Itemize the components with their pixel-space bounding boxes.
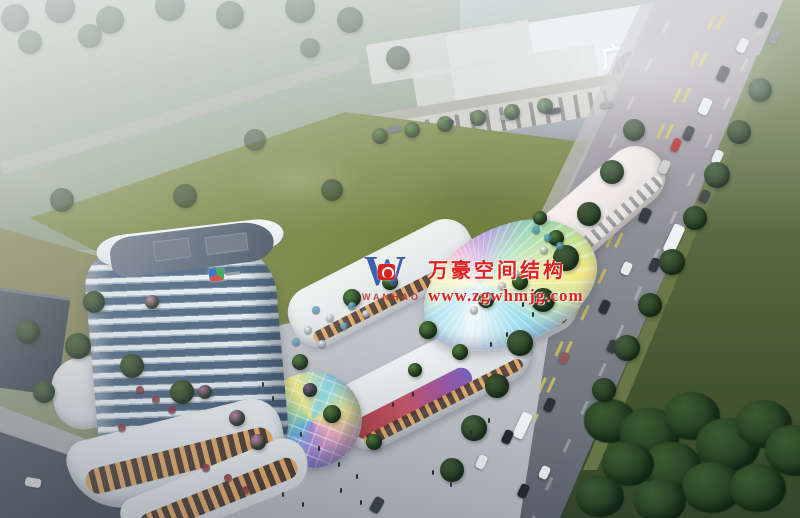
tree xyxy=(323,405,341,423)
tree xyxy=(437,116,453,132)
tree xyxy=(577,202,601,226)
tree xyxy=(614,335,640,361)
car xyxy=(388,125,403,133)
pedestrian xyxy=(302,502,304,507)
tree xyxy=(170,380,194,404)
tree xyxy=(408,363,422,377)
tree xyxy=(683,206,707,230)
car xyxy=(767,29,780,45)
tree xyxy=(452,344,468,360)
umbrella-icon xyxy=(318,340,326,348)
pedestrian xyxy=(432,470,434,475)
umbrella-icon xyxy=(168,406,176,414)
watermark-website-url: www.zgwhmjg.com xyxy=(428,286,584,306)
pedestrian xyxy=(392,402,394,407)
tower-brand-logo-icon xyxy=(208,267,224,281)
tree-cluster xyxy=(634,479,686,518)
tree xyxy=(600,160,624,184)
car xyxy=(698,189,712,205)
car xyxy=(637,207,652,225)
umbrella-icon xyxy=(326,314,334,322)
car xyxy=(620,261,634,277)
watermark-logo-badge-icon xyxy=(378,264,395,280)
tree xyxy=(533,211,547,225)
tree xyxy=(727,120,751,144)
umbrella-icon xyxy=(544,234,552,242)
tree xyxy=(300,38,320,58)
pedestrian xyxy=(272,396,274,401)
car xyxy=(24,477,41,489)
car xyxy=(597,299,611,315)
tree xyxy=(461,415,487,441)
umbrella-icon xyxy=(292,338,300,346)
tree xyxy=(748,78,772,102)
watermark-text: 万豪空间结构 www.zgwhmjg.com xyxy=(428,254,584,306)
tree xyxy=(45,0,75,23)
tree xyxy=(33,381,55,403)
tree xyxy=(592,378,616,402)
tree xyxy=(216,1,244,29)
tree xyxy=(404,122,420,138)
car xyxy=(500,429,514,445)
tree xyxy=(507,330,533,356)
pedestrian xyxy=(318,446,320,451)
car xyxy=(542,397,556,413)
tree xyxy=(292,354,308,370)
tree xyxy=(386,46,410,70)
car xyxy=(474,454,488,470)
tree xyxy=(303,383,317,397)
tree xyxy=(659,249,685,275)
pedestrian xyxy=(300,432,302,437)
tree xyxy=(244,129,266,151)
tree xyxy=(537,98,553,114)
tree xyxy=(440,458,464,482)
pedestrian xyxy=(490,342,492,347)
pedestrian xyxy=(338,462,340,467)
tree xyxy=(285,0,315,23)
pedestrian xyxy=(450,482,452,487)
car xyxy=(681,125,695,142)
umbrella-icon xyxy=(152,396,160,404)
tree xyxy=(372,128,388,144)
watermark-logo: W WANHAO xyxy=(364,252,422,310)
tree xyxy=(173,184,197,208)
tree xyxy=(485,374,509,398)
umbrella-icon xyxy=(532,226,540,234)
pedestrian xyxy=(360,500,362,505)
pedestrian xyxy=(262,382,264,387)
umbrella-icon xyxy=(312,306,320,314)
car xyxy=(512,411,533,440)
pedestrian xyxy=(412,392,414,397)
car xyxy=(735,37,749,54)
umbrella-icon xyxy=(242,486,250,494)
tree xyxy=(366,434,382,450)
car xyxy=(657,159,671,175)
pedestrian xyxy=(340,488,342,493)
car xyxy=(600,101,614,109)
pedestrian xyxy=(282,492,284,497)
tree-cluster xyxy=(730,464,786,512)
tree xyxy=(638,293,662,317)
car xyxy=(369,496,386,515)
tree xyxy=(16,320,40,344)
tree xyxy=(83,291,105,313)
car xyxy=(538,465,552,481)
tree xyxy=(623,119,645,141)
tree xyxy=(65,333,91,359)
umbrella-icon xyxy=(118,424,126,432)
umbrella-icon xyxy=(304,326,312,334)
car xyxy=(697,97,713,117)
aerial-rendering-scene: 万达广场 xyxy=(0,0,800,518)
pedestrian xyxy=(488,418,490,423)
pedestrian xyxy=(470,430,472,435)
umbrella-icon xyxy=(348,302,356,310)
tree xyxy=(18,30,42,54)
tree xyxy=(1,4,29,32)
car xyxy=(754,11,769,29)
tree xyxy=(250,434,266,450)
tree xyxy=(337,7,363,33)
umbrella-icon xyxy=(202,464,210,472)
tree xyxy=(155,0,185,21)
umbrella-icon xyxy=(136,386,144,394)
watermark-company-name: 万豪空间结构 xyxy=(428,254,584,283)
car xyxy=(715,65,731,84)
watermark: W WANHAO 万豪空间结构 www.zgwhmjg.com xyxy=(364,252,594,316)
tree xyxy=(120,354,144,378)
car xyxy=(669,137,682,153)
car xyxy=(516,483,530,499)
umbrella-icon xyxy=(556,242,564,250)
tree xyxy=(50,188,74,212)
tree xyxy=(504,104,520,120)
tree xyxy=(321,179,343,201)
umbrella-icon xyxy=(340,322,348,330)
tree xyxy=(145,295,159,309)
tree xyxy=(470,110,486,126)
pedestrian xyxy=(356,474,358,479)
umbrella-icon xyxy=(224,474,232,482)
car xyxy=(558,351,570,365)
tree xyxy=(419,321,437,339)
pedestrian xyxy=(506,332,508,337)
tree-cluster xyxy=(576,476,624,517)
rooftop-equipment xyxy=(153,237,191,261)
rooftop-equipment xyxy=(205,232,249,255)
tree xyxy=(229,410,245,426)
watermark-logo-subtext: WANHAO xyxy=(362,292,421,302)
tree xyxy=(198,385,212,399)
tree xyxy=(704,162,730,188)
tree xyxy=(78,24,102,48)
